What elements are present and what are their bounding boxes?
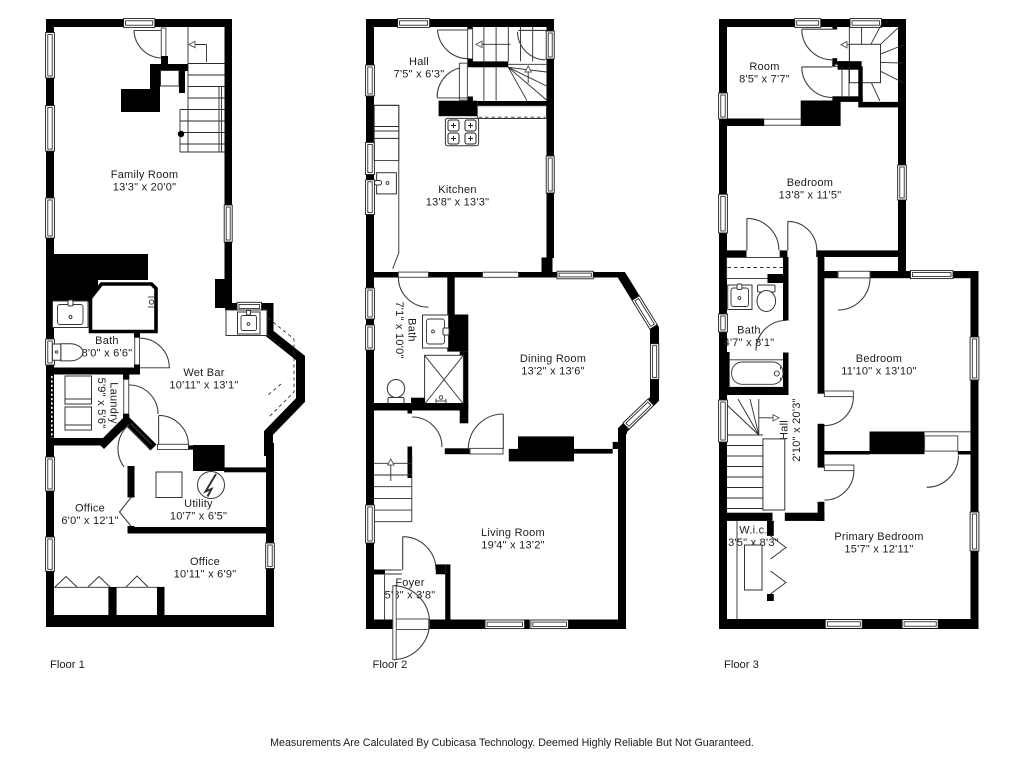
svg-text:10'11" x 6'9": 10'11" x 6'9": [174, 569, 237, 581]
svg-text:6'0" x 12'1": 6'0" x 12'1": [61, 515, 118, 527]
svg-text:5'9" x 5'6": 5'9" x 5'6": [95, 378, 107, 429]
svg-text:5'8" x 3'8": 5'8" x 3'8": [385, 590, 436, 602]
svg-text:13'8" x 11'5": 13'8" x 11'5": [779, 190, 842, 202]
svg-text:4'7" x 8'1": 4'7" x 8'1": [724, 337, 775, 349]
svg-text:2'10" x 20'3": 2'10" x 20'3": [791, 398, 803, 462]
svg-text:11'10" x 13'10": 11'10" x 13'10": [841, 366, 917, 378]
svg-text:Floor 3: Floor 3: [724, 659, 759, 671]
svg-text:W.i.c.: W.i.c.: [739, 525, 767, 537]
svg-text:19'4" x 13'2": 19'4" x 13'2": [481, 540, 545, 552]
svg-text:Room: Room: [749, 61, 779, 73]
svg-text:Floor 1: Floor 1: [50, 659, 85, 671]
svg-text:Bath: Bath: [406, 318, 418, 342]
svg-text:Foyer: Foyer: [395, 577, 424, 589]
svg-text:Living Room: Living Room: [481, 527, 545, 539]
svg-text:Floor 2: Floor 2: [373, 659, 408, 671]
svg-text:Laundry: Laundry: [108, 382, 120, 424]
svg-text:Bedroom: Bedroom: [787, 177, 833, 189]
svg-text:Measurements Are Calculated By: Measurements Are Calculated By Cubicasa …: [270, 737, 754, 749]
svg-text:Family Room: Family Room: [111, 169, 179, 181]
svg-text:7'1" x 10'0": 7'1" x 10'0": [393, 301, 405, 358]
svg-text:Bath: Bath: [95, 335, 119, 347]
svg-text:10'11" x 13'1": 10'11" x 13'1": [169, 380, 238, 392]
svg-text:8'0" x 6'6": 8'0" x 6'6": [82, 348, 133, 360]
svg-text:13'8" x 13'3": 13'8" x 13'3": [426, 197, 490, 209]
svg-text:Hall: Hall: [779, 420, 791, 440]
svg-text:Office: Office: [190, 556, 220, 568]
svg-text:Kitchen: Kitchen: [438, 184, 476, 196]
svg-text:Wet Bar: Wet Bar: [183, 367, 224, 379]
svg-text:Office: Office: [75, 503, 105, 515]
svg-text:13'3" x 20'0": 13'3" x 20'0": [113, 182, 177, 194]
svg-text:Dining Room: Dining Room: [520, 353, 586, 365]
svg-text:Utility: Utility: [184, 498, 213, 510]
svg-text:Primary Bedroom: Primary Bedroom: [834, 531, 923, 543]
svg-text:Bedroom: Bedroom: [856, 353, 902, 365]
svg-text:15'7" x 12'11": 15'7" x 12'11": [844, 544, 913, 556]
svg-text:8'5" x 7'7": 8'5" x 7'7": [739, 74, 790, 86]
svg-text:10'7" x 6'5": 10'7" x 6'5": [170, 511, 227, 523]
svg-text:Hall: Hall: [409, 56, 429, 68]
svg-text:13'2" x 13'6": 13'2" x 13'6": [521, 366, 585, 378]
svg-text:Bath: Bath: [737, 325, 761, 337]
svg-text:7'5" x 6'3": 7'5" x 6'3": [394, 69, 445, 81]
